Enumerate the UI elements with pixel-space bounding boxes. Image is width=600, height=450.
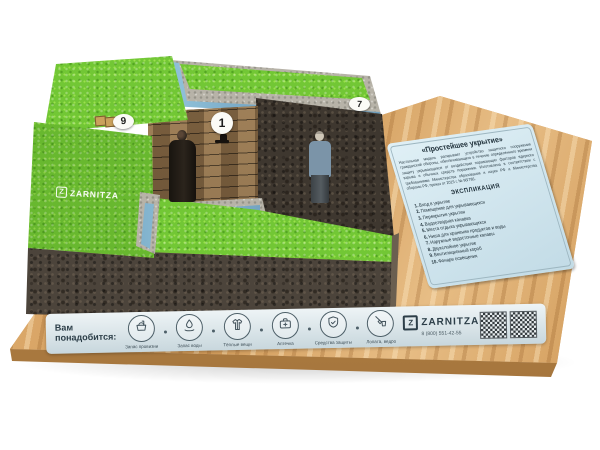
qr-code-icon [480, 311, 508, 339]
marker-9: 9 [113, 113, 135, 129]
coat-icon [229, 316, 244, 336]
supply-item-water: Запас воды [167, 314, 212, 349]
zarnitza-phone: 8 (800) 551-42-55 [421, 330, 461, 337]
basket-icon [134, 319, 149, 339]
qr-codes [480, 310, 538, 338]
qr-code-icon [510, 310, 538, 338]
zarnitza-mark-icon: Z [403, 315, 418, 330]
zarnitza-brand-block: Z ZARNITZA 8 (800) 551-42-55 [403, 314, 479, 338]
person-figure-trench [309, 141, 331, 177]
supply-item-shovel: Лопата, ведро [359, 310, 404, 345]
shovel-icon [373, 313, 388, 333]
model-photo-scene: «Простейшее укрытие» Настольная модель р… [0, 0, 600, 450]
supply-item-protection: Средства защиты [311, 311, 356, 346]
person-figure-trench-legs [311, 175, 329, 203]
shield-icon [325, 314, 340, 334]
person-figure-inside [169, 140, 196, 202]
supply-item-first-aid: Аптечка [263, 312, 308, 347]
zarnitza-logo-text: ZARNITZA [70, 188, 119, 201]
marker-1: 1 [211, 112, 233, 134]
supplies-label: Вам понадобится: [55, 323, 119, 344]
lamp-icon [215, 134, 231, 150]
supply-item-provisions: Запас провизии [119, 315, 164, 350]
supply-item-warm-clothes: Тёплые вещи [215, 313, 260, 348]
person-figure-trench-head [315, 131, 324, 141]
first-aid-icon [277, 315, 292, 335]
zarnitza-brand-name: ZARNITZA [421, 316, 479, 328]
water-icon [182, 317, 197, 337]
zarnitza-mark-icon: Z [56, 186, 68, 198]
